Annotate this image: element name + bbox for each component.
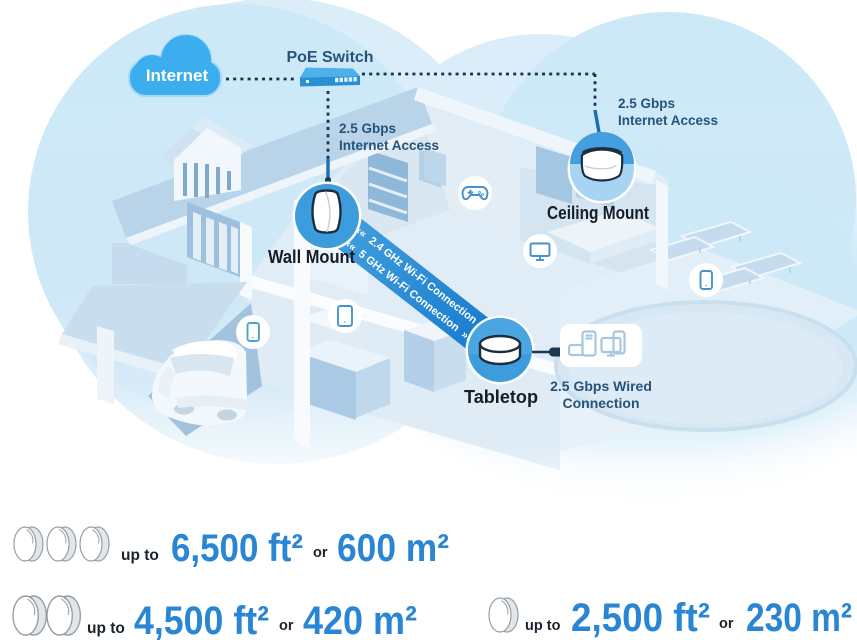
svg-text:6,500 ft²: 6,500 ft²: [171, 527, 303, 570]
svg-text:2.5 Gbps: 2.5 Gbps: [339, 121, 396, 136]
svg-text:Wall Mount: Wall Mount: [268, 247, 355, 267]
svg-text:Connection: Connection: [563, 395, 640, 411]
svg-text:Internet Access: Internet Access: [618, 113, 718, 128]
svg-text:Internet Access: Internet Access: [339, 138, 439, 153]
svg-text:2.5 Gbps: 2.5 Gbps: [618, 96, 675, 111]
svg-text:or: or: [313, 545, 328, 561]
svg-text:Ceiling Mount: Ceiling Mount: [547, 203, 649, 223]
svg-text:or: or: [279, 618, 294, 634]
svg-text:2,500 ft²: 2,500 ft²: [571, 596, 710, 640]
svg-text:up to: up to: [525, 618, 561, 634]
svg-text:2.5 Gbps Wired: 2.5 Gbps Wired: [550, 378, 652, 394]
svg-text:600 m²: 600 m²: [337, 527, 449, 570]
svg-text:4,500 ft²: 4,500 ft²: [134, 599, 269, 640]
svg-text:up to: up to: [87, 620, 125, 637]
svg-text:Internet: Internet: [146, 66, 209, 85]
svg-text:230 m²: 230 m²: [746, 596, 852, 640]
svg-text:or: or: [719, 616, 734, 632]
svg-text:Tabletop: Tabletop: [464, 387, 538, 407]
svg-text:PoE Switch: PoE Switch: [286, 49, 373, 66]
svg-text:420 m²: 420 m²: [303, 599, 417, 640]
svg-text:up to: up to: [121, 547, 159, 564]
